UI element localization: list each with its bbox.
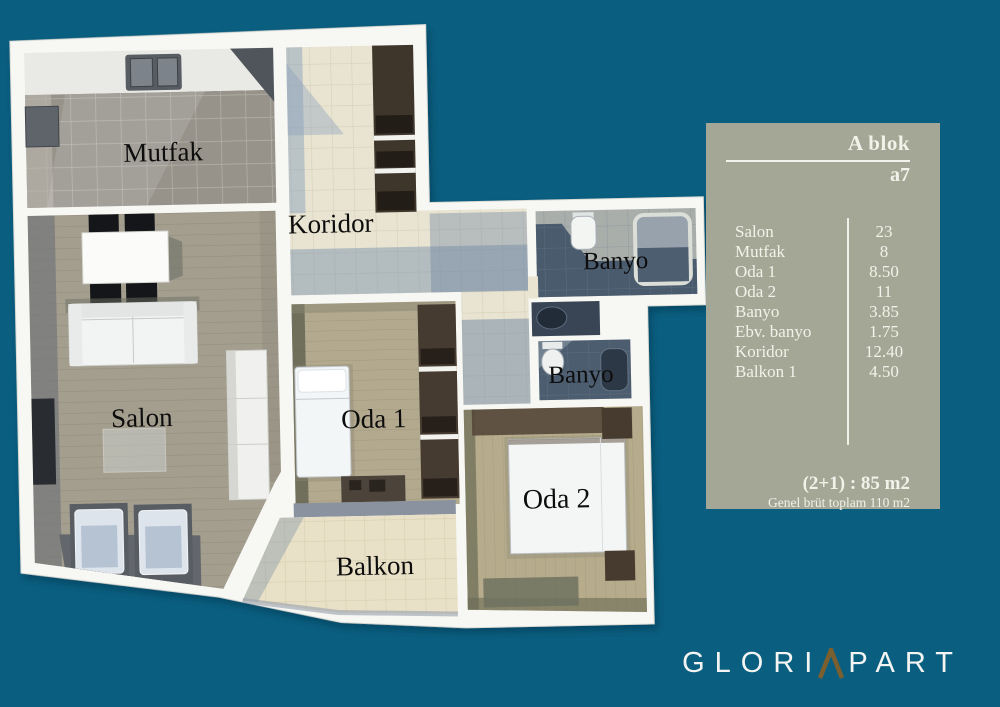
page: Mutfak Koridor Banyo Banyo Salon Oda 1 O…: [0, 0, 1000, 707]
sofa-arm: [68, 304, 82, 366]
label-mutfak: Mutfak: [123, 136, 204, 168]
row-value: 4.50: [847, 362, 921, 382]
row-label: Mutfak: [706, 242, 847, 262]
table-row: Banyo 3.85: [706, 302, 940, 322]
oda1-wardrobe-divider: [420, 434, 458, 440]
label-salon: Salon: [111, 402, 174, 433]
logo-text-right: PART: [848, 647, 963, 680]
row-label: Balkon 1: [706, 362, 847, 382]
row-label: Salon: [706, 222, 847, 242]
table-row: Mutfak 8: [706, 242, 940, 262]
armchair-seat: [145, 526, 182, 569]
row-label: Koridor: [706, 342, 847, 362]
room-mutfak: [24, 48, 276, 208]
unit-summary: (2+1) : 85 m2: [803, 473, 910, 495]
nightstand: [605, 550, 636, 581]
label-banyo-1: Banyo: [583, 247, 649, 275]
sofa-arm: [183, 301, 197, 363]
dining-table: [82, 231, 169, 284]
row-value: 8: [847, 242, 921, 262]
oda1-wardrobe: [417, 304, 459, 499]
hall-wardrobe-divider: [374, 135, 415, 141]
label-oda2: Oda 2: [522, 483, 590, 515]
dresser-item: [349, 480, 361, 490]
armchair-seat: [81, 525, 118, 568]
unit-info-panel: A blok a7 Salon 23 Mutfak 8 Oda 1 8.50 O…: [706, 123, 940, 509]
hall-wardrobe-shelf: [376, 115, 413, 134]
row-label: Oda 1: [706, 262, 847, 282]
oda1-wardrobe-shelf: [423, 478, 457, 497]
brand-logo: GLORI PART: [682, 647, 963, 679]
table-shadow: [168, 236, 183, 281]
coffee-table: [103, 428, 166, 472]
row-label: Ebv. banyo: [706, 322, 847, 342]
hall-wardrobe-divider: [375, 168, 416, 174]
sink-basin-right: [157, 58, 178, 86]
area-table: Salon 23 Mutfak 8 Oda 1 8.50 Oda 2 11 Ba…: [706, 222, 940, 382]
bed-pillow: [298, 369, 346, 392]
label-koridor: Koridor: [288, 208, 374, 240]
row-value: 8.50: [847, 262, 921, 282]
row-label: Banyo: [706, 302, 847, 322]
table-row: Salon 23: [706, 222, 940, 242]
row-value: 23: [847, 222, 921, 242]
table-row: Ebv. banyo 1.75: [706, 322, 940, 342]
banyo1-door-opening: [528, 276, 538, 298]
room-salon: [24, 209, 283, 593]
label-banyo-2: Banyo: [548, 361, 614, 389]
dresser-item: [369, 480, 385, 492]
sofa-back: [68, 301, 196, 318]
gross-total: Genel brüt toplam 110 m2: [768, 495, 910, 511]
label-oda1: Oda 1: [341, 403, 407, 434]
table-row: Oda 1 8.50: [706, 262, 940, 282]
sink-basin-left: [130, 58, 153, 86]
table-row: Oda 2 11: [706, 282, 940, 302]
caret-A-icon: [818, 648, 844, 679]
floor-plan: Mutfak Koridor Banyo Banyo Salon Oda 1 O…: [0, 0, 720, 660]
lavabo-niche: [531, 301, 600, 336]
table-row: Balkon 1 4.50: [706, 362, 940, 382]
washbasin-icon: [537, 307, 567, 330]
hall-wardrobe-shelf: [376, 151, 413, 168]
toilet-icon: [571, 216, 597, 250]
row-value: 3.85: [847, 302, 921, 322]
nightstand: [602, 407, 633, 439]
unit-code: a7: [706, 162, 940, 187]
row-value: 12.40: [847, 342, 921, 362]
oda1-wardrobe-divider: [419, 366, 457, 372]
oda2-wardrobe: [472, 407, 605, 436]
row-value: 1.75: [847, 322, 921, 342]
oda1-wardrobe-shelf: [422, 416, 456, 433]
hall-wardrobe-shelf: [377, 191, 414, 211]
dining-chair: [89, 214, 119, 235]
label-balkon: Balkon: [336, 550, 415, 582]
table-row: Koridor 12.40: [706, 342, 940, 362]
dining-chair: [124, 211, 154, 232]
toilet-tank: [542, 342, 562, 349]
row-label: Oda 2: [706, 282, 847, 302]
fridge-icon: [25, 106, 59, 147]
logo-text-left: GLORI: [682, 647, 822, 680]
koridor-shadow-mid: [430, 211, 529, 292]
row-value: 11: [847, 282, 921, 302]
koridor-shadow-lower: [462, 318, 531, 404]
oda2-rug: [483, 576, 579, 607]
block-title: A blok: [706, 123, 940, 156]
oda1-wardrobe-shelf: [420, 348, 454, 365]
